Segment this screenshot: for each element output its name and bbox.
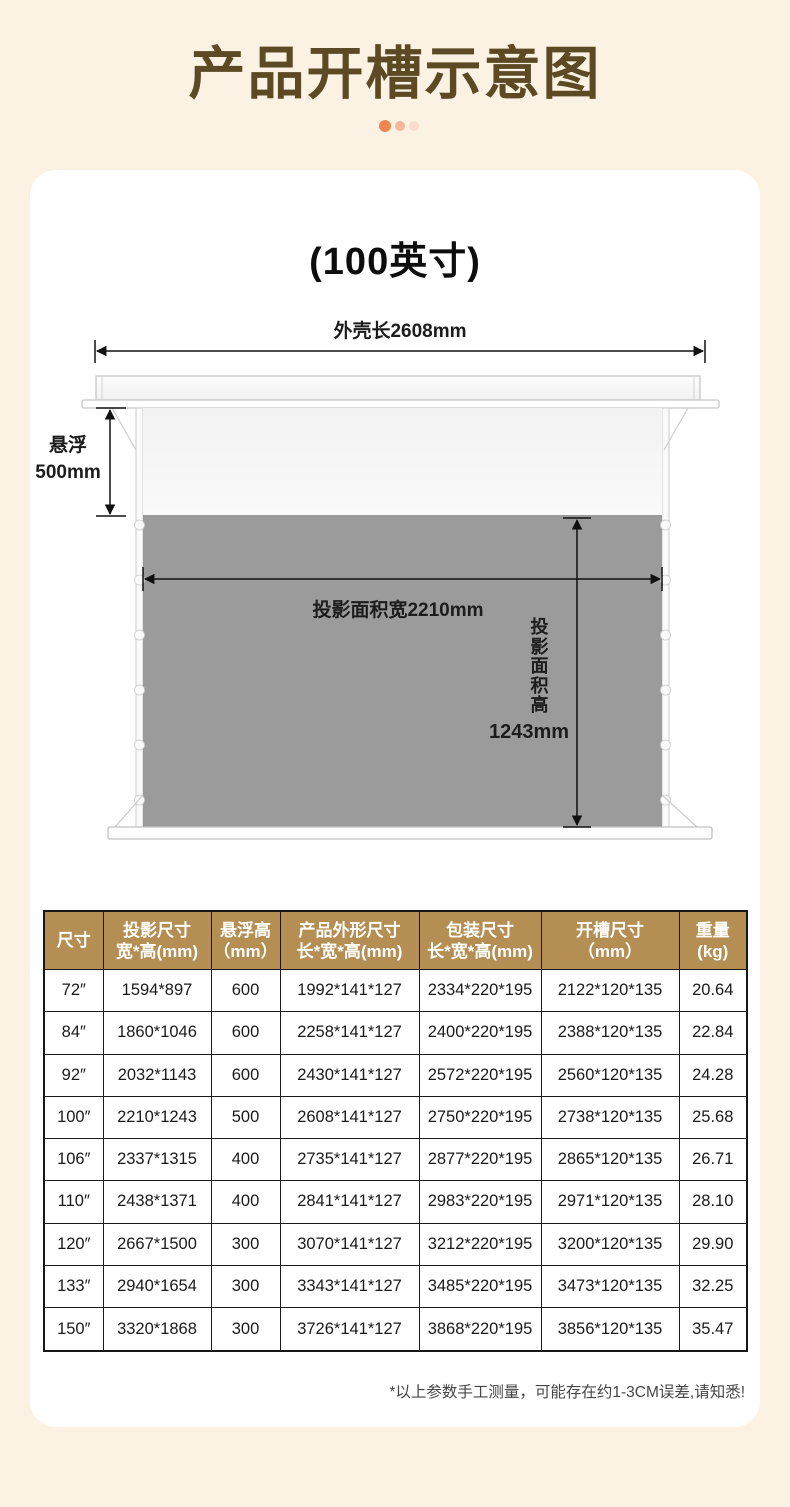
table-cell: 600 [211, 970, 280, 1012]
table-cell: 3320*1868 [103, 1308, 211, 1351]
table-cell: 84″ [44, 1012, 103, 1054]
carousel-dot[interactable] [395, 121, 405, 131]
table-row: 84″1860*10466002258*141*1272400*220*1952… [44, 1012, 747, 1054]
table-cell: 2983*220*195 [419, 1181, 541, 1223]
projection-height-label: 投影面积高 [529, 618, 550, 716]
carousel-dot-active[interactable] [379, 120, 391, 132]
carousel-dot[interactable] [409, 121, 419, 131]
projection-width-label: 投影面积宽2210mm [95, 595, 701, 622]
table-cell: 2400*220*195 [419, 1012, 541, 1054]
shell-length-dimension [95, 340, 705, 363]
table-cell: 100″ [44, 1096, 103, 1138]
table-cell: 150″ [44, 1308, 103, 1351]
column-header: 悬浮高（mm） [211, 911, 280, 970]
table-cell: 2971*120*135 [541, 1181, 679, 1223]
table-cell: 3868*220*195 [419, 1308, 541, 1351]
table-cell: 2667*1500 [103, 1223, 211, 1265]
table-cell: 2877*220*195 [419, 1139, 541, 1181]
table-row: 92″2032*11436002430*141*1272572*220*1952… [44, 1054, 747, 1096]
table-cell: 35.47 [679, 1308, 747, 1351]
table-cell: 2258*141*127 [280, 1012, 419, 1054]
table-cell: 2750*220*195 [419, 1096, 541, 1138]
table-cell: 3473*120*135 [541, 1265, 679, 1307]
table-cell: 300 [211, 1308, 280, 1351]
table-cell: 3343*141*127 [280, 1265, 419, 1307]
table-cell: 22.84 [679, 1012, 747, 1054]
table-cell: 2841*141*127 [280, 1181, 419, 1223]
table-cell: 600 [211, 1012, 280, 1054]
table-cell: 1992*141*127 [280, 970, 419, 1012]
table-cell: 3200*120*135 [541, 1223, 679, 1265]
shell-length-label: 外壳长2608mm [95, 316, 705, 343]
table-cell: 26.71 [679, 1139, 747, 1181]
table-row: 106″2337*13154002735*141*1272877*220*195… [44, 1139, 747, 1181]
table-cell: 106″ [44, 1139, 103, 1181]
table-cell: 32.25 [679, 1265, 747, 1307]
table-cell: 600 [211, 1054, 280, 1096]
table-cell: 400 [211, 1139, 280, 1181]
table-row: 110″2438*13714002841*141*1272983*220*195… [44, 1181, 747, 1223]
projection-height-value: 1243mm [479, 721, 579, 744]
column-header: 重量(kg) [679, 911, 747, 970]
table-cell: 110″ [44, 1181, 103, 1223]
diagram-size-title: (100英寸) [30, 230, 760, 285]
column-header: 包装尺寸长*宽*高(mm) [419, 911, 541, 970]
table-cell: 300 [211, 1223, 280, 1265]
table-cell: 133″ [44, 1265, 103, 1307]
table-cell: 29.90 [679, 1223, 747, 1265]
table-row: 133″2940*16543003343*141*1273485*220*195… [44, 1265, 747, 1307]
table-cell: 2122*120*135 [541, 970, 679, 1012]
table-cell: 2940*1654 [103, 1265, 211, 1307]
screen-housing [96, 376, 700, 400]
table-row: 150″3320*18683003726*141*1273868*220*195… [44, 1308, 747, 1351]
table-cell: 500 [211, 1096, 280, 1138]
column-header: 产品外形尺寸长*宽*高(mm) [280, 911, 419, 970]
table-cell: 2334*220*195 [419, 970, 541, 1012]
table-cell: 3212*220*195 [419, 1223, 541, 1265]
projection-area [143, 515, 662, 827]
column-header: 尺寸 [44, 911, 103, 970]
table-cell: 24.28 [679, 1054, 747, 1096]
table-cell: 400 [211, 1181, 280, 1223]
column-header: 投影尺寸宽*高(mm) [103, 911, 211, 970]
table-cell: 120″ [44, 1223, 103, 1265]
float-height-label-line2: 500mm [30, 459, 106, 486]
table-cell: 2560*120*135 [541, 1054, 679, 1096]
table-cell: 2438*1371 [103, 1181, 211, 1223]
table-cell: 3726*141*127 [280, 1308, 419, 1351]
spec-table-body: 72″1594*8976001992*141*1272334*220*19521… [44, 970, 747, 1352]
page: 产品开槽示意图 (100英寸) [0, 0, 790, 1507]
table-cell: 2865*120*135 [541, 1139, 679, 1181]
screen-dimension-diagram [30, 310, 760, 840]
table-cell: 20.64 [679, 970, 747, 1012]
float-height-label-line1: 悬浮 [30, 432, 106, 459]
table-cell: 2735*141*127 [280, 1139, 419, 1181]
screen-drop-area [143, 408, 662, 515]
spec-card: (100英寸) [30, 170, 760, 1427]
spec-table-header-row: 尺寸投影尺寸宽*高(mm)悬浮高（mm）产品外形尺寸长*宽*高(mm)包装尺寸长… [44, 911, 747, 970]
table-cell: 300 [211, 1265, 280, 1307]
table-row: 100″2210*12435002608*141*1272750*220*195… [44, 1096, 747, 1138]
table-cell: 2738*120*135 [541, 1096, 679, 1138]
table-cell: 1594*897 [103, 970, 211, 1012]
table-row: 72″1594*8976001992*141*1272334*220*19521… [44, 970, 747, 1012]
table-cell: 2032*1143 [103, 1054, 211, 1096]
spec-table: 尺寸投影尺寸宽*高(mm)悬浮高（mm）产品外形尺寸长*宽*高(mm)包装尺寸长… [43, 910, 748, 1352]
table-cell: 3485*220*195 [419, 1265, 541, 1307]
table-row: 120″2667*15003003070*141*1273212*220*195… [44, 1223, 747, 1265]
table-cell: 72″ [44, 970, 103, 1012]
housing-flange [82, 400, 719, 408]
carousel-indicator [0, 120, 790, 134]
table-cell: 3856*120*135 [541, 1308, 679, 1351]
bottom-bar [108, 827, 712, 839]
spec-table-wrap: 尺寸投影尺寸宽*高(mm)悬浮高（mm）产品外形尺寸长*宽*高(mm)包装尺寸长… [43, 910, 746, 1352]
column-header: 开槽尺寸（mm） [541, 911, 679, 970]
float-height-label: 悬浮 500mm [30, 432, 106, 486]
measurement-footnote: *以上参数手工测量，可能存在约1-3CM误差,请知悉! [389, 1380, 745, 1402]
table-cell: 2388*120*135 [541, 1012, 679, 1054]
page-title: 产品开槽示意图 [0, 28, 790, 110]
table-cell: 2430*141*127 [280, 1054, 419, 1096]
table-cell: 2337*1315 [103, 1139, 211, 1181]
table-cell: 28.10 [679, 1181, 747, 1223]
table-cell: 2608*141*127 [280, 1096, 419, 1138]
table-cell: 2572*220*195 [419, 1054, 541, 1096]
table-cell: 25.68 [679, 1096, 747, 1138]
table-cell: 92″ [44, 1054, 103, 1096]
table-cell: 3070*141*127 [280, 1223, 419, 1265]
table-cell: 2210*1243 [103, 1096, 211, 1138]
table-cell: 1860*1046 [103, 1012, 211, 1054]
